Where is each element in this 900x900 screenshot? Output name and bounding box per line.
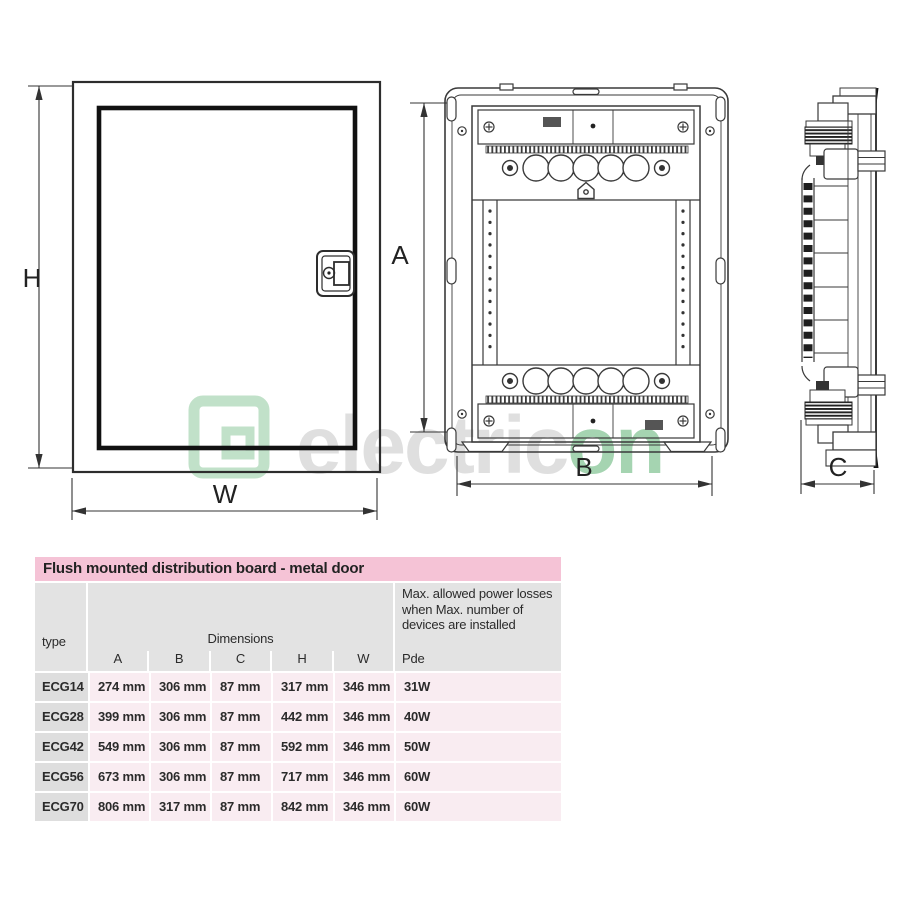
watermark-logo	[194, 401, 264, 473]
subheader-a: A	[88, 651, 147, 671]
dimension-a	[410, 103, 447, 432]
cell-pde: 31W	[394, 673, 561, 701]
wall-claw-top	[858, 151, 885, 171]
technical-drawings: electricon H W	[0, 0, 900, 545]
cell-pde: 60W	[394, 793, 561, 821]
cell-w: 346 mm	[333, 763, 394, 791]
cell-a: 274 mm	[88, 673, 149, 701]
cell-c: 87 mm	[210, 763, 271, 791]
cell-h: 442 mm	[271, 703, 333, 731]
subheader-c: C	[209, 651, 270, 671]
cell-type: ECG56	[35, 763, 88, 791]
front-open-view	[445, 84, 728, 452]
table-row: ECG42 549 mm 306 mm 87 mm 592 mm 346 mm …	[35, 733, 561, 761]
table-row: ECG56 673 mm 306 mm 87 mm 717 mm 346 mm …	[35, 763, 561, 791]
dimension-subheaders: A B C H W	[88, 651, 393, 671]
cell-b: 306 mm	[149, 733, 210, 761]
subheader-pde: Pde	[402, 651, 561, 671]
knockout-circles-bottom	[503, 368, 670, 394]
cell-a: 806 mm	[88, 793, 149, 821]
dimension-b-label: B	[575, 452, 592, 482]
cell-pde: 50W	[394, 733, 561, 761]
watermark-gray: electric	[296, 400, 568, 491]
power-header-group: Max. allowed power losses when Max. numb…	[393, 583, 561, 671]
cell-h: 842 mm	[271, 793, 333, 821]
cell-b: 306 mm	[149, 673, 210, 701]
cell-w: 346 mm	[333, 733, 394, 761]
table-row: ECG70 806 mm 317 mm 87 mm 842 mm 346 mm …	[35, 793, 561, 821]
cell-c: 87 mm	[210, 793, 271, 821]
side-view	[802, 88, 885, 468]
cell-type: ECG42	[35, 733, 88, 761]
dimensions-header-group: Dimensions A B C H W	[88, 583, 393, 671]
dimension-a-label: A	[391, 240, 409, 270]
door-lock-icon	[317, 251, 354, 296]
table-header: type Dimensions A B C H W Max. allowed p…	[35, 583, 561, 671]
dimension-w-label: W	[213, 479, 238, 509]
dimensions-header: Dimensions	[88, 583, 393, 651]
cell-w: 346 mm	[333, 703, 394, 731]
dimension-h-label: H	[23, 263, 42, 293]
cell-type: ECG14	[35, 673, 88, 701]
cell-c: 87 mm	[210, 673, 271, 701]
cell-pde: 60W	[394, 763, 561, 791]
dimension-c-label: C	[829, 452, 848, 482]
subheader-h: H	[270, 651, 331, 671]
cell-w: 346 mm	[333, 673, 394, 701]
knockout-circles-top	[503, 155, 670, 181]
power-header: Max. allowed power losses when Max. numb…	[402, 586, 561, 651]
cell-h: 592 mm	[271, 733, 333, 761]
cell-b: 306 mm	[149, 763, 210, 791]
din-rails	[483, 200, 690, 365]
cell-a: 549 mm	[88, 733, 149, 761]
cell-b: 317 mm	[149, 793, 210, 821]
cell-a: 673 mm	[88, 763, 149, 791]
cell-a: 399 mm	[88, 703, 149, 731]
vent-slots	[802, 178, 814, 362]
subheader-w: W	[332, 651, 393, 671]
cell-h: 317 mm	[271, 673, 333, 701]
table-row: ECG28 399 mm 306 mm 87 mm 442 mm 346 mm …	[35, 703, 561, 731]
screw-icon	[484, 122, 688, 132]
table-title: Flush mounted distribution board - metal…	[35, 557, 561, 581]
cell-h: 717 mm	[271, 763, 333, 791]
table-row: ECG14 274 mm 306 mm 87 mm 317 mm 346 mm …	[35, 673, 561, 701]
subheader-b: B	[147, 651, 208, 671]
house-icon	[578, 183, 594, 199]
cell-c: 87 mm	[210, 703, 271, 731]
spec-table: Flush mounted distribution board - metal…	[35, 557, 561, 821]
cell-pde: 40W	[394, 703, 561, 731]
cell-type: ECG70	[35, 793, 88, 821]
type-header: type	[35, 583, 88, 671]
wall-claw-bottom	[858, 375, 885, 395]
cell-w: 346 mm	[333, 793, 394, 821]
datasheet-page: { "watermark": { "gray_text": "electric"…	[0, 0, 900, 900]
cell-b: 306 mm	[149, 703, 210, 731]
cell-c: 87 mm	[210, 733, 271, 761]
cell-type: ECG28	[35, 703, 88, 731]
